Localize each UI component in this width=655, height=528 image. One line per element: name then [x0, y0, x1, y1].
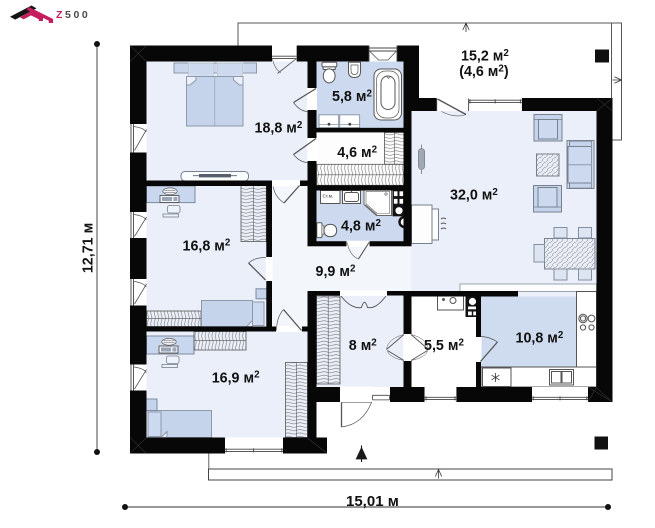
svg-text:16,8 м2: 16,8 м2 — [183, 238, 231, 255]
svg-text:9,9 м2: 9,9 м2 — [316, 263, 356, 280]
svg-text:5,5 м2: 5,5 м2 — [424, 337, 464, 354]
svg-text:15,2 м2: 15,2 м2 — [461, 48, 509, 65]
svg-text:16,9 м2: 16,9 м2 — [212, 370, 260, 387]
svg-text:4,6 м2: 4,6 м2 — [337, 144, 377, 161]
svg-text:Ст.м.: Ст.м. — [323, 194, 334, 199]
svg-text:10,8 м2: 10,8 м2 — [516, 330, 564, 347]
svg-text:Z500: Z500 — [56, 9, 90, 21]
svg-text:15,01 м: 15,01 м — [346, 493, 399, 510]
svg-text:4,8 м2: 4,8 м2 — [341, 218, 381, 235]
svg-text:5,8 м2: 5,8 м2 — [332, 88, 372, 105]
svg-text:32,0 м2: 32,0 м2 — [450, 187, 498, 204]
svg-text:12,71 м: 12,71 м — [81, 223, 97, 273]
svg-text:18,8 м2: 18,8 м2 — [255, 120, 303, 137]
